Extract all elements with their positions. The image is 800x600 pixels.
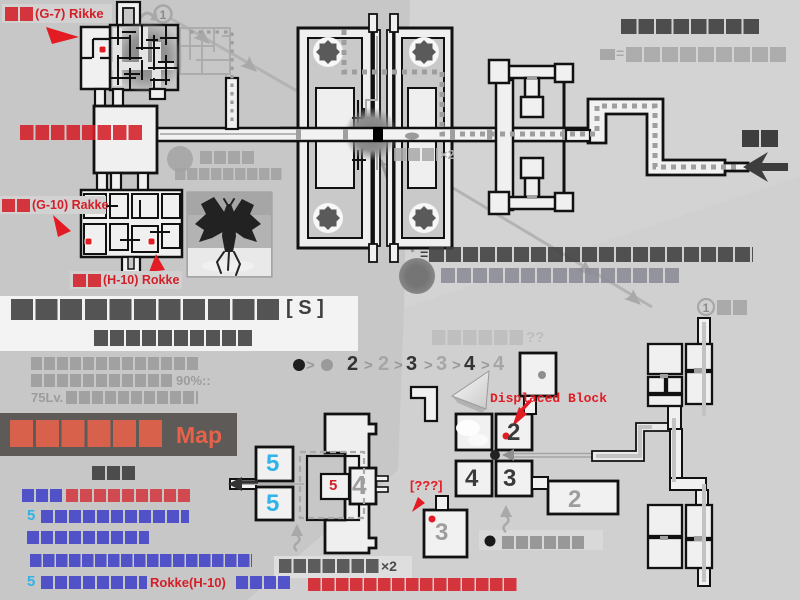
svg-text:1: 1 (160, 8, 167, 22)
svg-text:1: 1 (703, 301, 710, 315)
